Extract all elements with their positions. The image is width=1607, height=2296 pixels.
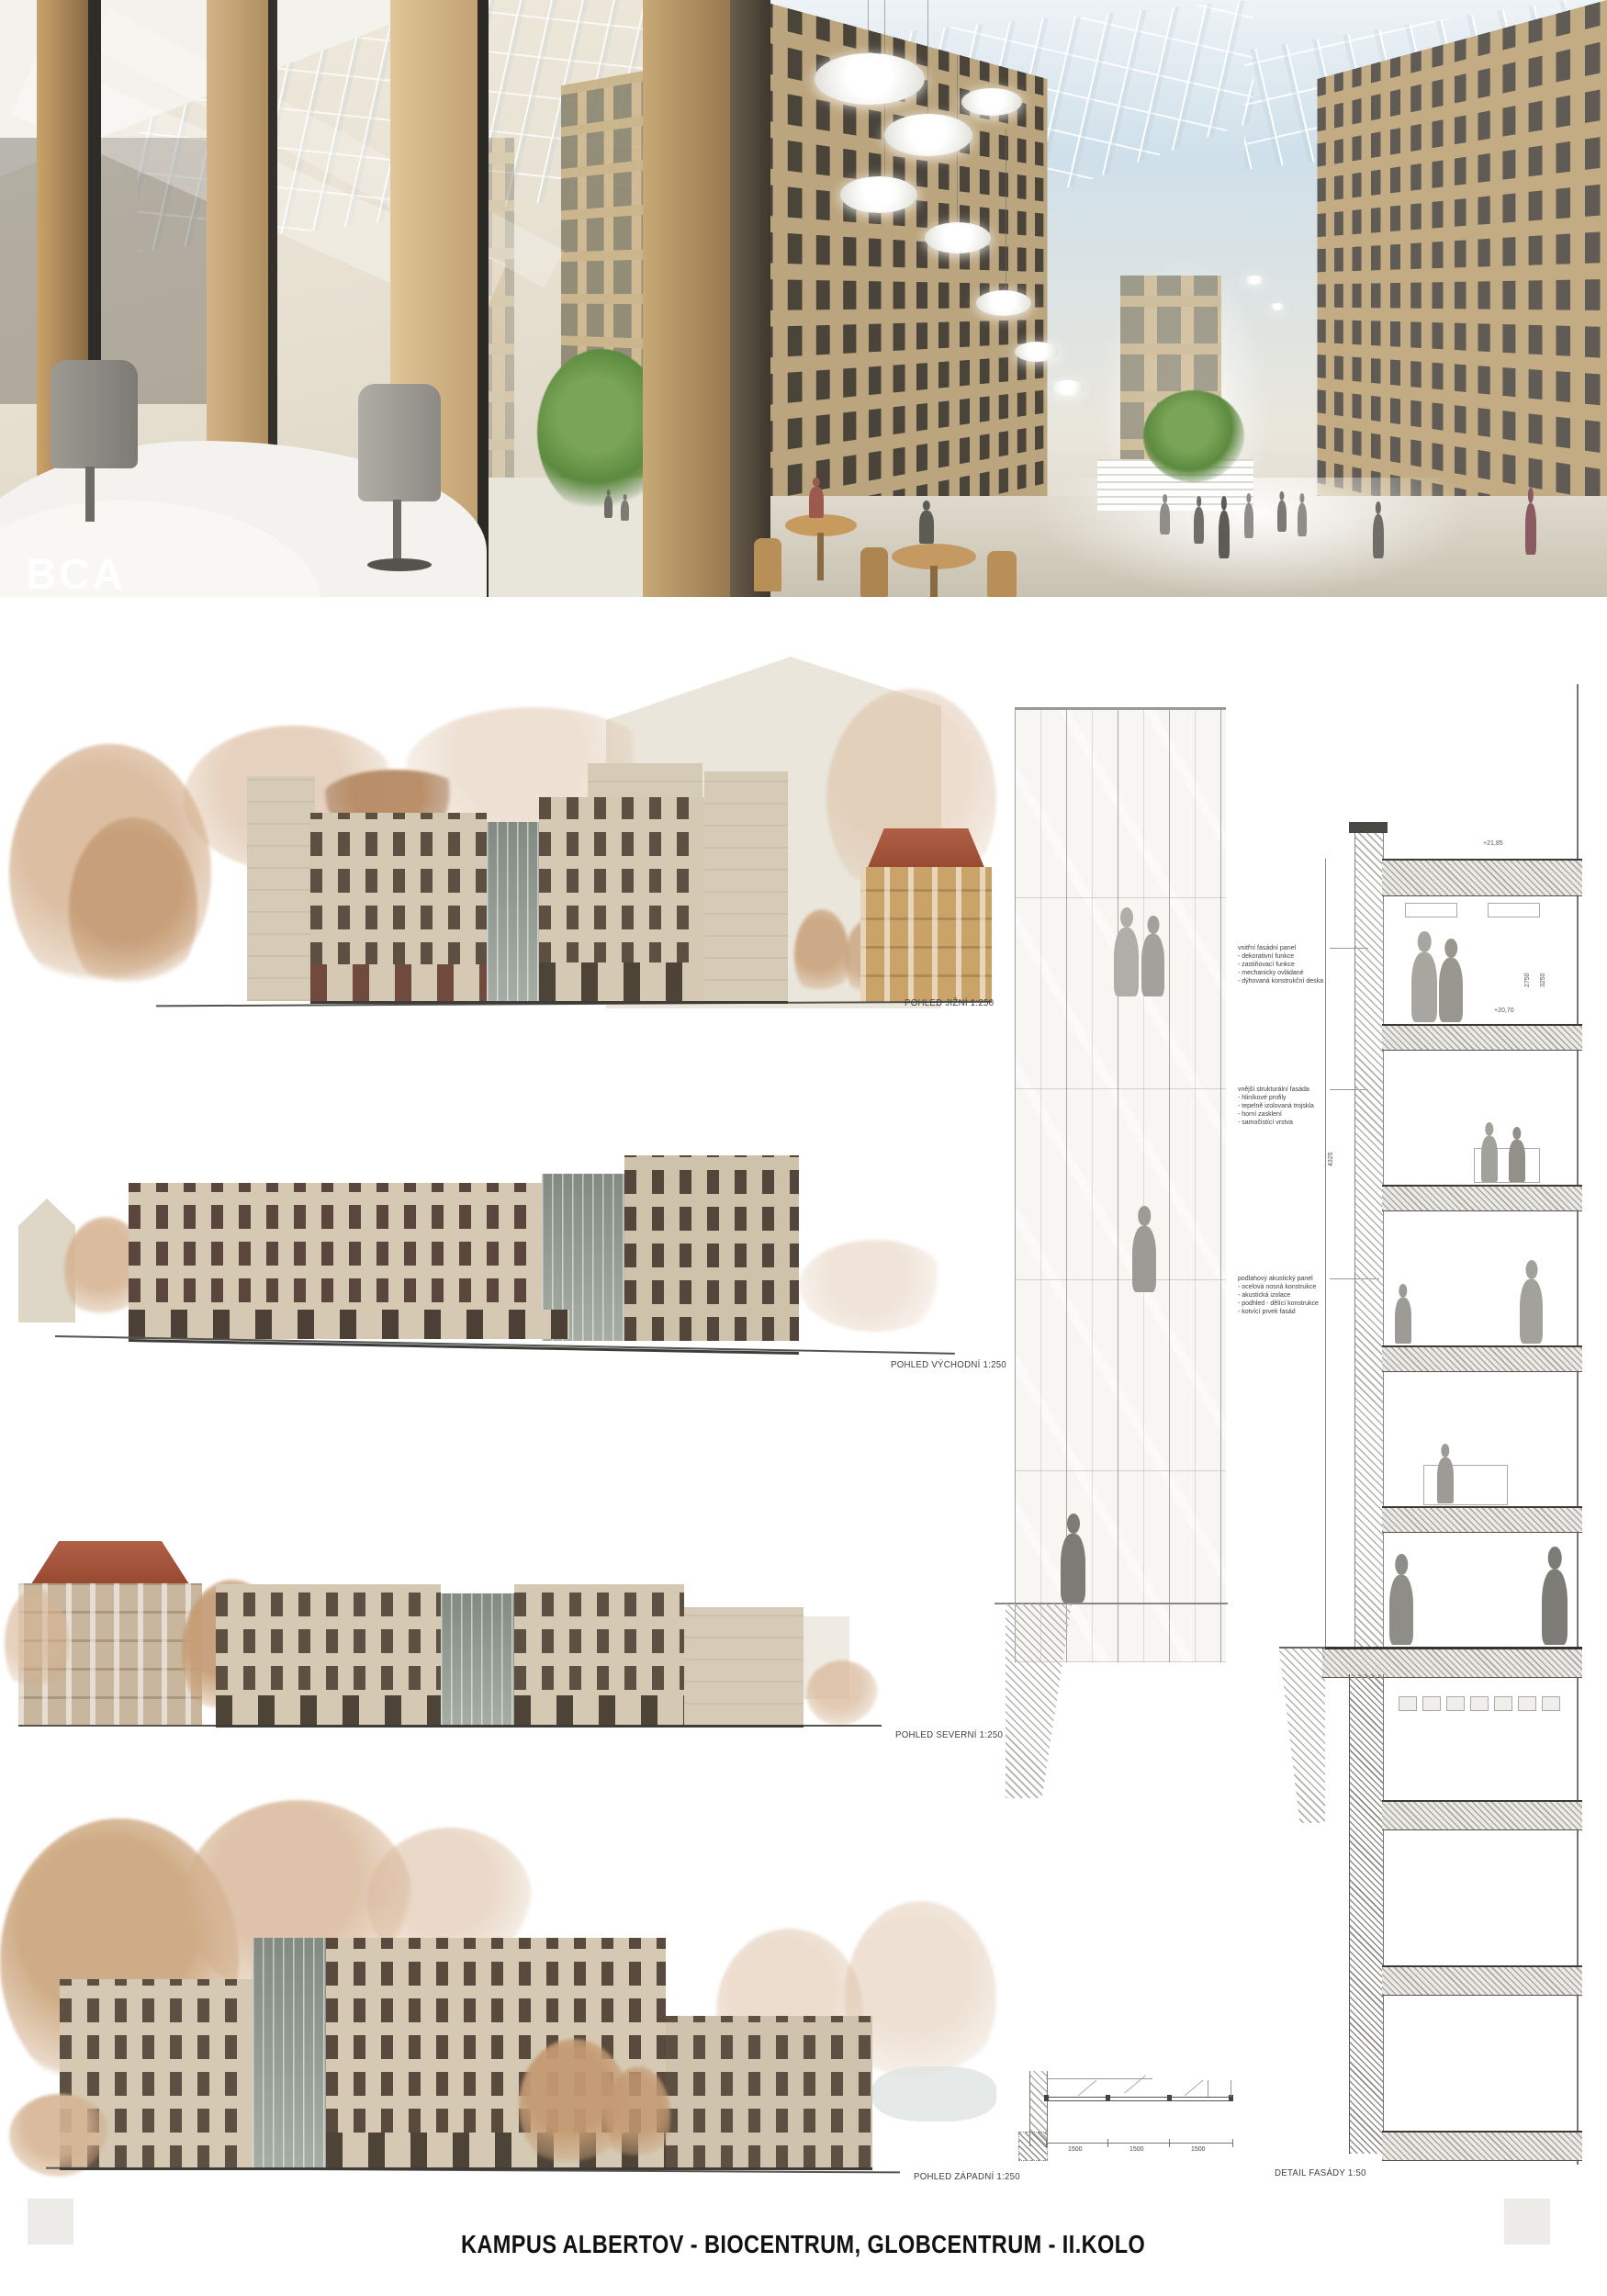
cafe-table-leg xyxy=(817,533,824,580)
person-figure xyxy=(1244,503,1253,538)
annotation-block: vnitřní fasádní panel - dekorativní funk… xyxy=(1238,944,1332,985)
facade-right-wing xyxy=(666,2016,872,2169)
landscape-water xyxy=(872,2066,996,2122)
person-figure xyxy=(1114,928,1139,996)
seated-person-figure xyxy=(1437,1458,1454,1503)
render-atrium-hall xyxy=(730,0,1607,597)
basement-slab xyxy=(1382,1800,1582,1830)
dimension-text: 4325 xyxy=(1328,1152,1334,1166)
person-figure xyxy=(1061,1534,1085,1603)
level-marker: +21,85 xyxy=(1483,840,1503,847)
building-base-shadow xyxy=(60,2167,872,2170)
seated-person-figure xyxy=(1509,1140,1525,1182)
facade-top-cap xyxy=(1015,707,1226,710)
tree-blob xyxy=(799,1240,950,1332)
pendant-light-icon xyxy=(925,222,991,253)
plan-mullion xyxy=(1044,2095,1049,2101)
hero-renders: BCA xyxy=(0,0,1607,597)
office-chair xyxy=(358,384,441,501)
plan-dim-text: 1500 xyxy=(1129,2146,1144,2153)
historic-facade xyxy=(860,867,992,1003)
dimension-text: 2750 xyxy=(1524,973,1531,987)
annotation-item: - zastiňovací funkce xyxy=(1238,961,1332,969)
annotation-item: - akustická izolace xyxy=(1238,1291,1332,1300)
office-chair-base xyxy=(393,500,401,564)
ground-hatch xyxy=(1006,1604,1072,1798)
elevation-south: POHLED JIŽNÍ 1:250 xyxy=(18,634,992,1015)
arcade-ground-floor xyxy=(310,964,487,1003)
seated-person-figure xyxy=(809,487,824,518)
glass-connector xyxy=(487,822,539,1003)
seated-person-figure xyxy=(1395,1298,1411,1344)
building-base-shadow xyxy=(216,1725,803,1728)
facade-plan-detail: 1500 1500 1500 xyxy=(1015,2043,1235,2163)
floor-slab xyxy=(1382,1024,1582,1051)
person-figure xyxy=(1520,1279,1543,1344)
bca-logo: BCA xyxy=(26,549,126,597)
street-tree xyxy=(794,909,849,1001)
window-mullion xyxy=(478,0,489,597)
cafe-chair xyxy=(987,551,1017,597)
office-chair-wheels xyxy=(367,558,432,571)
board-title: KAMPUS ALBERTOV - BIOCENTRUM, GLOBCENTRU… xyxy=(0,2230,1607,2259)
plan-dim-text: 1500 xyxy=(1191,2146,1206,2153)
ground-slab xyxy=(1322,1647,1582,1678)
person-figure xyxy=(1298,503,1307,536)
annotation-title: vnější strukturální fasáda xyxy=(1238,1086,1332,1094)
pendant-light-icon xyxy=(840,176,917,213)
person-figure xyxy=(1439,958,1463,1022)
chair-row-item xyxy=(1542,1696,1560,1711)
arcade-ground-floor xyxy=(539,962,704,1003)
pendant-stem xyxy=(868,0,869,57)
glass-recess xyxy=(441,1593,514,1727)
basement-slab xyxy=(1382,2131,1582,2161)
plan-ledger-line xyxy=(1046,2078,1152,2079)
office-chair-base xyxy=(85,467,95,522)
pendant-light-icon xyxy=(1050,380,1084,396)
foreground-tree xyxy=(606,2066,670,2167)
foreground-bush xyxy=(9,2094,110,2177)
basement-slab xyxy=(1382,1965,1582,1996)
person-figure xyxy=(1160,503,1170,535)
chair-row-item xyxy=(1399,1696,1417,1711)
tree-blob xyxy=(69,817,197,1001)
annotation-item: - dýhovaná konstrukční deska xyxy=(1238,977,1332,985)
facade-elevation-detail xyxy=(1015,707,1226,1662)
pendant-light-icon xyxy=(1244,276,1264,285)
ceiling-panel xyxy=(1488,903,1540,917)
seated-person-figure xyxy=(919,511,934,544)
annotation-item: - mechanicky ovládané xyxy=(1238,969,1332,977)
annotation-item: - ocelová nosná konstrukce xyxy=(1238,1283,1332,1291)
section-right-boundary xyxy=(1577,684,1579,2165)
presentation-board: BCA POHLED JIŽNÍ 1:250 xyxy=(0,0,1607,2296)
person-figure xyxy=(1411,952,1437,1022)
plan-dim-tick xyxy=(1232,2139,1233,2147)
cafe-chair xyxy=(860,547,888,597)
pendant-light-icon xyxy=(976,290,1031,316)
board-title-text: KAMPUS ALBERTOV - BIOCENTRUM, GLOBCENTRU… xyxy=(461,2230,1145,2259)
wood-fin xyxy=(643,0,730,597)
pendant-light-icon xyxy=(1015,342,1059,362)
cafe-chair xyxy=(754,538,781,591)
person-figure xyxy=(1277,501,1287,532)
pendant-light-icon xyxy=(884,114,972,156)
seam-pillar xyxy=(730,0,770,597)
masonry-mass xyxy=(684,1607,803,1727)
plan-end-tick xyxy=(1231,2080,1231,2097)
building-base-shadow xyxy=(310,1001,788,1004)
person-figure xyxy=(1194,507,1204,544)
person-figure xyxy=(1373,514,1384,558)
plan-mullion xyxy=(1106,2095,1110,2101)
glass-reflection-stroke xyxy=(1185,2080,1204,2096)
ceiling-panel xyxy=(1405,903,1457,917)
chair-row-item xyxy=(1422,1696,1441,1711)
section-dim-line xyxy=(1325,859,1326,1649)
elevation-label: POHLED VÝCHODNÍ 1:250 xyxy=(891,1359,1006,1370)
masonry-wall xyxy=(247,776,315,1001)
tree-blob xyxy=(5,1589,69,1699)
level-marker: +20,70 xyxy=(1494,1007,1514,1014)
plan-dim-tick xyxy=(1046,2139,1047,2147)
facade-section-detail: +21,85 +20,70 2750 3250 xyxy=(1336,684,1582,2167)
annotation-item: - samočistící vrstva xyxy=(1238,1119,1332,1127)
annotation-item: - horní zasklení xyxy=(1238,1110,1332,1119)
facade-right-block xyxy=(624,1155,799,1341)
floor-slab xyxy=(1382,1185,1582,1211)
arcade-ground-floor xyxy=(129,1310,569,1339)
floor-slab xyxy=(1382,1506,1582,1533)
annotation-block: podlahový akustický panel - ocelová nosn… xyxy=(1238,1275,1332,1316)
pendant-light-icon xyxy=(1270,303,1285,310)
grade-line xyxy=(1279,1647,1325,1649)
annotation-title: vnitřní fasádní panel xyxy=(1238,944,1332,952)
glass-reflection-stroke xyxy=(1078,2080,1097,2096)
plan-dim-tick xyxy=(1169,2139,1170,2147)
desk-outline xyxy=(1423,1465,1508,1505)
pendant-stem xyxy=(1006,129,1006,294)
exterior-wall-hatch xyxy=(1354,831,1384,1649)
elevation-label: POHLED ZÁPADNÍ 1:250 xyxy=(914,2171,1020,2182)
arcade-ground-floor xyxy=(514,1695,684,1727)
glass-strip xyxy=(253,1938,326,2169)
grade-hatch xyxy=(1279,1649,1325,1823)
arcade-ground-floor xyxy=(216,1695,441,1727)
office-chair xyxy=(51,360,138,468)
pendant-light-icon xyxy=(961,88,1022,116)
parapet-cap xyxy=(1349,822,1388,833)
elevation-north: POHLED SEVERNÍ 1:250 xyxy=(18,1506,992,1745)
plan-footing-hatch xyxy=(1018,2132,1048,2161)
chair-row-item xyxy=(1494,1696,1512,1711)
annotation-block: vnější strukturální fasáda - hliníkové p… xyxy=(1238,1086,1332,1127)
cafe-table-leg xyxy=(930,566,938,597)
plan-dim-text: 1500 xyxy=(1068,2146,1083,2153)
dimension-text: 3250 xyxy=(1540,973,1546,987)
annotation-item: - kotvící prvek fasád xyxy=(1238,1308,1332,1316)
person-figure xyxy=(1542,1570,1568,1645)
annotation-item: - tepelně izolovaná trojskla xyxy=(1238,1102,1332,1110)
person-figure xyxy=(1132,1226,1156,1292)
basement-wall-hatch xyxy=(1349,1674,1384,2154)
annotation-item: - hliníkové profily xyxy=(1238,1094,1332,1102)
elevation-east: POHLED VÝCHODNÍ 1:250 xyxy=(18,1130,1019,1382)
person-figure xyxy=(1141,934,1164,996)
person-figure xyxy=(621,501,629,521)
person-figure xyxy=(1389,1575,1413,1645)
person-figure xyxy=(1219,511,1230,558)
plan-end-tick xyxy=(1208,2080,1208,2097)
plan-dim-line xyxy=(1046,2143,1233,2144)
plan-glass-line xyxy=(1046,2097,1233,2101)
annotation-item: - podhled - dělící konstrukce xyxy=(1238,1300,1332,1308)
chair-row-item xyxy=(1470,1696,1489,1711)
annotation-title: podlahový akustický panel xyxy=(1238,1275,1332,1283)
chair-row-item xyxy=(1446,1696,1465,1711)
pendant-light-icon xyxy=(815,53,925,105)
plan-mullion xyxy=(1167,2095,1172,2101)
plan-dim-tick xyxy=(1107,2139,1108,2147)
person-figure xyxy=(1525,503,1536,555)
elevation-west: POHLED ZÁPADNÍ 1:250 xyxy=(18,1791,992,2186)
facade-detail-label: DETAIL FASÁDY 1:50 xyxy=(1275,2167,1366,2178)
person-figure xyxy=(604,496,612,518)
street-tree xyxy=(806,1660,878,1727)
chair-row-item xyxy=(1518,1696,1536,1711)
roof-slab xyxy=(1382,859,1582,896)
elevation-label: POHLED SEVERNÍ 1:250 xyxy=(895,1729,1003,1740)
elevation-label: POHLED JIŽNÍ 1:250 xyxy=(905,997,994,1008)
atrium-tree xyxy=(1143,390,1244,482)
render-office-interior xyxy=(0,0,730,597)
floor-slab xyxy=(1382,1345,1582,1372)
pendant-stem xyxy=(927,0,928,118)
historic-roof xyxy=(18,1541,202,1587)
seated-person-figure xyxy=(1481,1136,1498,1182)
annotation-item: - dekorativní funkce xyxy=(1238,952,1332,961)
masonry-mass xyxy=(704,771,788,1003)
